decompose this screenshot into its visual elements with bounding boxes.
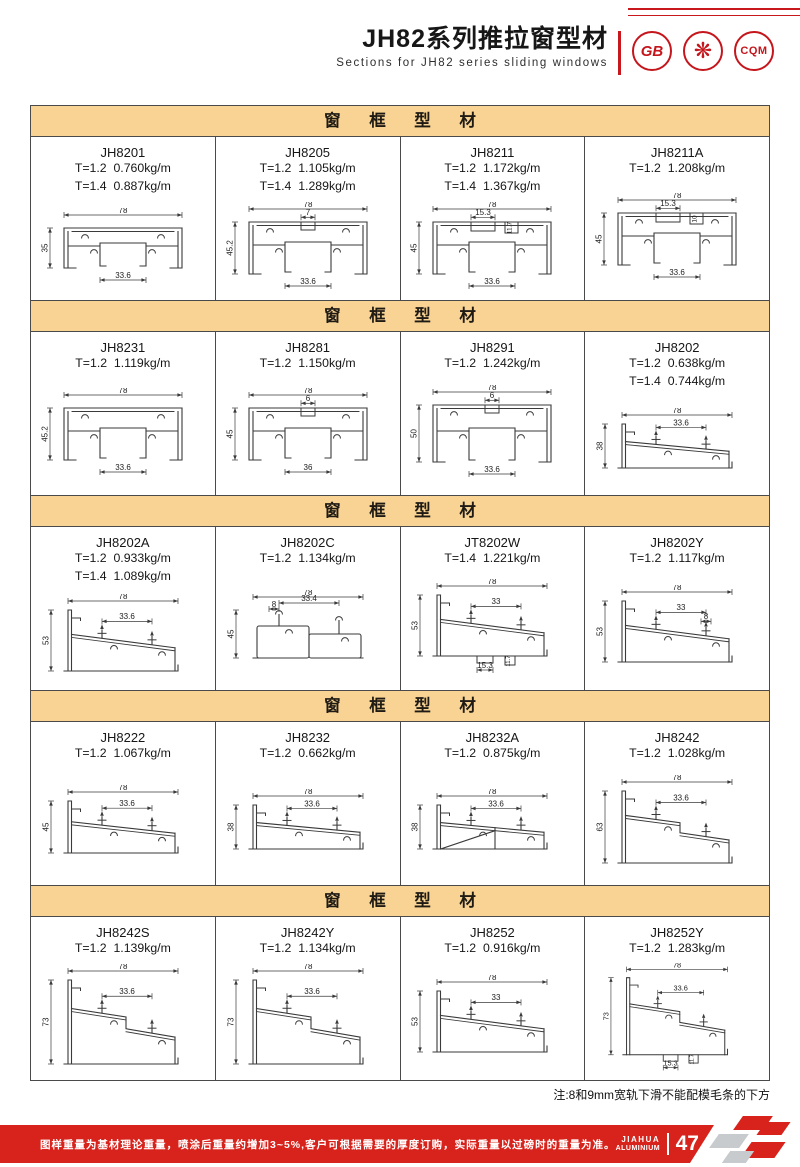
svg-text:50: 50 bbox=[410, 429, 419, 438]
svg-text:45.2: 45.2 bbox=[40, 426, 49, 442]
product-cell-JH8231: JH8231T=1.2 1.119kg/m7845.233.6 bbox=[31, 332, 215, 495]
drawing-area: 7833.67315.311.7 bbox=[585, 958, 769, 1080]
profile-drawing-JH8222: 7833.645 bbox=[38, 785, 208, 863]
product-spec: T=1.4 1.367kg/m bbox=[444, 178, 540, 196]
section-banner: 窗 框 型 材 bbox=[31, 300, 769, 332]
product-code: JH8211A bbox=[651, 145, 704, 160]
drawing-area: 7833853 bbox=[585, 568, 769, 690]
company-logo-icon bbox=[706, 1115, 794, 1167]
svg-text:78: 78 bbox=[488, 789, 497, 796]
product-cell-JH8281: JH8281T=1.2 1.150kg/m7864536 bbox=[215, 332, 400, 495]
drawing-area: 7833.638 bbox=[216, 763, 400, 885]
svg-text:78: 78 bbox=[118, 208, 127, 215]
svg-text:78: 78 bbox=[303, 789, 312, 796]
product-code: JH8232A bbox=[466, 730, 519, 745]
svg-text:78: 78 bbox=[673, 775, 682, 782]
svg-text:33.6: 33.6 bbox=[119, 799, 135, 808]
brand-line2: ALUMINIUM bbox=[616, 1145, 661, 1153]
product-cell-JH8211: JH8211T=1.2 1.172kg/mT=1.4 1.367kg/m7815… bbox=[400, 137, 585, 300]
product-spec: T=1.2 1.242kg/m bbox=[444, 355, 540, 373]
profile-drawing-JH8202C: 7833.4845 bbox=[223, 590, 393, 668]
profile-drawing-JH8231: 7845.233.6 bbox=[38, 388, 208, 480]
product-cell-JH8242: JH8242T=1.2 1.028kg/m7833.663 bbox=[584, 722, 769, 885]
product-cell-JH8252: JH8252T=1.2 0.916kg/m783353 bbox=[400, 917, 585, 1080]
product-cell-JH8252Y: JH8252YT=1.2 1.283kg/m7833.67315.311.7 bbox=[584, 917, 769, 1080]
svg-text:53: 53 bbox=[411, 621, 420, 630]
svg-text:45: 45 bbox=[410, 243, 419, 252]
drawing-area: 7833.638 bbox=[401, 763, 585, 885]
product-specs: T=1.2 0.875kg/m bbox=[444, 745, 540, 763]
svg-text:78: 78 bbox=[118, 785, 127, 792]
profile-table: 窗 框 型 材JH8201T=1.2 0.760kg/mT=1.4 0.887k… bbox=[30, 105, 770, 1081]
svg-text:33.6: 33.6 bbox=[485, 465, 501, 474]
product-spec: T=1.4 0.744kg/m bbox=[629, 373, 725, 391]
product-specs: T=1.2 1.134kg/m bbox=[260, 940, 356, 958]
svg-text:78: 78 bbox=[118, 388, 127, 395]
profile-drawing-JH8242Y: 7833.673 bbox=[223, 964, 393, 1074]
profile-drawing-JH8201: 783533.6 bbox=[38, 208, 208, 288]
svg-text:45.2: 45.2 bbox=[225, 239, 234, 255]
product-cell-JH8291: JH8291T=1.2 1.242kg/m7865033.6 bbox=[400, 332, 585, 495]
profile-drawing-JH8211A: 7815.3104533.6 bbox=[592, 193, 762, 285]
product-specs: T=1.2 1.028kg/m bbox=[629, 745, 725, 763]
product-cell-JH8202: JH8202T=1.2 0.638kg/mT=1.4 0.744kg/m7833… bbox=[584, 332, 769, 495]
product-spec: T=1.2 1.208kg/m bbox=[629, 160, 725, 178]
product-code: JH8232 bbox=[285, 730, 330, 745]
drawing-area: 7833.663 bbox=[585, 763, 769, 885]
svg-text:63: 63 bbox=[596, 822, 605, 831]
product-spec: T=1.2 1.150kg/m bbox=[260, 355, 356, 373]
svg-text:45: 45 bbox=[595, 234, 604, 243]
product-cell-JH8202Y: JH8202YT=1.2 1.117kg/m7833853 bbox=[584, 527, 769, 690]
product-row: JH8202AT=1.2 0.933kg/mT=1.4 1.089kg/m783… bbox=[31, 527, 769, 690]
product-specs: T=1.2 1.134kg/m bbox=[260, 550, 356, 568]
product-code: JH8202C bbox=[281, 535, 335, 550]
svg-text:33.6: 33.6 bbox=[119, 612, 135, 621]
svg-text:38: 38 bbox=[226, 822, 235, 831]
profile-drawing-JH8242S: 7833.673 bbox=[38, 964, 208, 1074]
svg-text:38: 38 bbox=[411, 822, 420, 831]
product-specs: T=1.2 1.283kg/m bbox=[629, 940, 725, 958]
svg-text:11.7: 11.7 bbox=[506, 655, 512, 667]
svg-text:45: 45 bbox=[41, 822, 50, 831]
product-spec: T=1.4 0.887kg/m bbox=[75, 178, 171, 196]
svg-text:33.6: 33.6 bbox=[485, 277, 501, 286]
svg-text:33.6: 33.6 bbox=[674, 984, 688, 993]
drawing-area: 7864536 bbox=[216, 373, 400, 495]
product-specs: T=1.2 1.208kg/m bbox=[629, 160, 725, 178]
svg-text:15.3: 15.3 bbox=[664, 1059, 678, 1068]
product-specs: T=1.2 0.933kg/mT=1.4 1.089kg/m bbox=[75, 550, 171, 586]
title-divider bbox=[618, 31, 621, 75]
product-spec: T=1.4 1.089kg/m bbox=[75, 568, 171, 586]
svg-text:15.3: 15.3 bbox=[660, 199, 676, 208]
svg-text:33.6: 33.6 bbox=[300, 277, 316, 286]
drawing-area: 7845.233.6 bbox=[31, 373, 215, 495]
product-spec: T=1.2 1.172kg/m bbox=[444, 160, 540, 178]
product-code: JH8211 bbox=[470, 145, 514, 160]
svg-text:8: 8 bbox=[271, 600, 276, 609]
svg-text:53: 53 bbox=[41, 636, 50, 645]
product-spec: T=1.4 1.289kg/m bbox=[260, 178, 356, 196]
product-cell-JH8242S: JH8242ST=1.2 1.139kg/m7833.673 bbox=[31, 917, 215, 1080]
product-spec: T=1.2 1.139kg/m bbox=[75, 940, 171, 958]
title-block: JH82系列推拉窗型材 Sections for JH82 series sli… bbox=[336, 26, 608, 69]
product-specs: T=1.2 0.638kg/mT=1.4 0.744kg/m bbox=[629, 355, 725, 391]
product-spec: T=1.2 0.916kg/m bbox=[444, 940, 540, 958]
product-code: JH8242S bbox=[96, 925, 149, 940]
svg-text:33.6: 33.6 bbox=[489, 799, 505, 808]
product-spec: T=1.2 1.028kg/m bbox=[629, 745, 725, 763]
product-specs: T=1.4 1.221kg/m bbox=[444, 550, 540, 568]
product-specs: T=1.2 1.150kg/m bbox=[260, 355, 356, 373]
product-spec: T=1.4 1.221kg/m bbox=[444, 550, 540, 568]
certification-logos: GB ❋ CQM bbox=[632, 31, 774, 71]
section-banner: 窗 框 型 材 bbox=[31, 495, 769, 527]
product-spec: T=1.2 0.933kg/m bbox=[75, 550, 171, 568]
drawing-area: 78335315.311.7 bbox=[401, 568, 585, 690]
product-specs: T=1.2 1.117kg/m bbox=[630, 550, 725, 568]
profile-drawing-JH8205: 78745.233.6 bbox=[223, 202, 393, 294]
svg-text:73: 73 bbox=[226, 1017, 235, 1026]
section-banner: 窗 框 型 材 bbox=[31, 106, 769, 137]
profile-drawing-JH8252: 783353 bbox=[407, 975, 577, 1062]
product-code: JT8202W bbox=[465, 535, 521, 550]
svg-text:78: 78 bbox=[118, 964, 127, 971]
svg-text:11.7: 11.7 bbox=[690, 1054, 696, 1064]
svg-text:33: 33 bbox=[677, 604, 686, 613]
svg-text:7: 7 bbox=[305, 208, 310, 217]
footer-disclaimer: 图样重量为基材理论重量，喷涂后重量约增加3~5%,客户可根据需要的厚度订购，实际… bbox=[40, 1137, 616, 1152]
svg-text:6: 6 bbox=[305, 394, 310, 403]
drawing-area: 7865033.6 bbox=[401, 373, 585, 495]
svg-text:10: 10 bbox=[692, 215, 699, 223]
svg-text:38: 38 bbox=[596, 441, 605, 450]
product-spec: T=1.2 1.119kg/m bbox=[75, 355, 170, 373]
svg-text:33.6: 33.6 bbox=[673, 793, 689, 802]
svg-text:45: 45 bbox=[225, 429, 234, 438]
brand-separator bbox=[667, 1133, 669, 1155]
product-spec: T=1.2 1.134kg/m bbox=[260, 550, 356, 568]
product-code: JH8231 bbox=[100, 340, 145, 355]
profile-drawing-JH8291: 7865033.6 bbox=[407, 385, 577, 482]
drawing-area: 7833.653 bbox=[31, 586, 215, 690]
cqm-certification-icon: CQM bbox=[734, 31, 774, 71]
product-row: JH8201T=1.2 0.760kg/mT=1.4 0.887kg/m7835… bbox=[31, 137, 769, 300]
svg-text:33.6: 33.6 bbox=[115, 271, 131, 280]
page-footer: 图样重量为基材理论重量，喷涂后重量约增加3~5%,客户可根据需要的厚度订购，实际… bbox=[0, 1115, 800, 1167]
product-cell-JH8242Y: JH8242YT=1.2 1.134kg/m7833.673 bbox=[215, 917, 400, 1080]
product-code: JH8202Y bbox=[650, 535, 703, 550]
svg-text:73: 73 bbox=[602, 1012, 611, 1020]
product-row: JH8242ST=1.2 1.139kg/m7833.673JH8242YT=1… bbox=[31, 917, 769, 1080]
product-spec: T=1.2 1.283kg/m bbox=[629, 940, 725, 958]
product-cell-JH8232A: JH8232AT=1.2 0.875kg/m7833.638 bbox=[400, 722, 585, 885]
product-spec: T=1.2 0.875kg/m bbox=[444, 745, 540, 763]
product-code: JH8202A bbox=[96, 535, 149, 550]
product-specs: T=1.2 1.172kg/mT=1.4 1.367kg/m bbox=[444, 160, 540, 196]
profile-drawing-JH8211: 7815.311.74533.6 bbox=[407, 202, 577, 294]
product-spec: T=1.2 1.067kg/m bbox=[75, 745, 171, 763]
product-code: JH8242Y bbox=[281, 925, 334, 940]
svg-text:33.6: 33.6 bbox=[115, 463, 131, 472]
svg-text:78: 78 bbox=[118, 594, 127, 601]
svg-text:78: 78 bbox=[488, 975, 497, 982]
product-cell-JH8202A: JH8202AT=1.2 0.933kg/mT=1.4 1.089kg/m783… bbox=[31, 527, 215, 690]
footer-brand: JIAHUA ALUMINIUM 47 bbox=[616, 1132, 699, 1156]
header-rule-lines bbox=[628, 8, 800, 16]
svg-text:35: 35 bbox=[40, 243, 49, 252]
drawing-area: 7833.638 bbox=[585, 391, 769, 495]
svg-text:53: 53 bbox=[596, 627, 605, 636]
product-specs: T=1.2 1.105kg/mT=1.4 1.289kg/m bbox=[260, 160, 356, 196]
section-banner: 窗 框 型 材 bbox=[31, 885, 769, 917]
drawing-area: 7833.645 bbox=[31, 763, 215, 885]
svg-text:78: 78 bbox=[303, 964, 312, 971]
product-row: JH8222T=1.2 1.067kg/m7833.645JH8232T=1.2… bbox=[31, 722, 769, 885]
gb-certification-icon: GB bbox=[632, 31, 672, 71]
product-code: JH8201 bbox=[100, 145, 145, 160]
svg-text:78: 78 bbox=[673, 408, 682, 415]
product-code: JH8252 bbox=[470, 925, 515, 940]
drawing-area: 7833.4845 bbox=[216, 568, 400, 690]
product-spec: T=1.2 1.105kg/m bbox=[260, 160, 356, 178]
svg-text:45: 45 bbox=[226, 629, 235, 638]
footer-bar: 图样重量为基材理论重量，喷涂后重量约增加3~5%,客户可根据需要的厚度订购，实际… bbox=[0, 1125, 714, 1163]
drawing-area: 7833.673 bbox=[216, 958, 400, 1080]
svg-text:8: 8 bbox=[704, 613, 709, 622]
svg-text:53: 53 bbox=[411, 1017, 420, 1026]
profile-drawing-JH8202: 7833.638 bbox=[592, 408, 762, 478]
section-banner: 窗 框 型 材 bbox=[31, 690, 769, 722]
svg-text:15.3: 15.3 bbox=[478, 661, 494, 670]
profile-drawing-JH8202Y: 7833853 bbox=[592, 585, 762, 672]
product-code: JH8242 bbox=[655, 730, 700, 745]
svg-text:33.6: 33.6 bbox=[304, 987, 320, 996]
drawing-area: 783533.6 bbox=[31, 196, 215, 300]
product-code: JH8202 bbox=[655, 340, 700, 355]
drawing-area: 7833.673 bbox=[31, 958, 215, 1080]
svg-text:78: 78 bbox=[673, 585, 682, 592]
brand-name: JIAHUA ALUMINIUM bbox=[616, 1135, 661, 1152]
product-cell-JH8211A: JH8211AT=1.2 1.208kg/m7815.3104533.6 bbox=[584, 137, 769, 300]
product-spec: T=1.2 1.117kg/m bbox=[630, 550, 725, 568]
svg-text:15.3: 15.3 bbox=[476, 208, 492, 217]
product-code: JH8205 bbox=[285, 145, 330, 160]
profile-drawing-JH8252Y: 7833.67315.311.7 bbox=[599, 963, 755, 1075]
catalog-page: JH82系列推拉窗型材 Sections for JH82 series sli… bbox=[0, 0, 800, 1167]
product-cell-JH8202C: JH8202CT=1.2 1.134kg/m7833.4845 bbox=[215, 527, 400, 690]
svg-text:11.7: 11.7 bbox=[507, 221, 514, 234]
profile-drawing-JH8232A: 7833.638 bbox=[407, 789, 577, 859]
page-title: JH82系列推拉窗型材 bbox=[336, 26, 608, 54]
product-cell-JH8201: JH8201T=1.2 0.760kg/mT=1.4 0.887kg/m7835… bbox=[31, 137, 215, 300]
svg-text:6: 6 bbox=[490, 392, 495, 401]
svg-text:33.6: 33.6 bbox=[119, 987, 135, 996]
svg-text:33.4: 33.4 bbox=[301, 594, 317, 603]
svg-text:78: 78 bbox=[488, 579, 497, 586]
product-spec: T=1.2 0.638kg/m bbox=[629, 355, 725, 373]
product-specs: T=1.2 0.662kg/m bbox=[260, 745, 356, 763]
product-row: JH8231T=1.2 1.119kg/m7845.233.6JH8281T=1… bbox=[31, 332, 769, 495]
product-spec: T=1.2 0.662kg/m bbox=[260, 745, 356, 763]
logo-shape bbox=[709, 1134, 749, 1148]
svg-text:33.6: 33.6 bbox=[669, 268, 685, 277]
drawing-area: 7815.3104533.6 bbox=[585, 178, 769, 300]
product-specs: T=1.2 1.242kg/m bbox=[444, 355, 540, 373]
product-specs: T=1.2 0.760kg/mT=1.4 0.887kg/m bbox=[75, 160, 171, 196]
logo-shape bbox=[722, 1151, 754, 1163]
product-code: JH8281 bbox=[285, 340, 330, 355]
svg-text:33: 33 bbox=[492, 598, 501, 607]
footnote: 注:8和9mm宽轨下滑不能配模毛条的下方 bbox=[30, 1086, 770, 1103]
product-cell-JH8222: JH8222T=1.2 1.067kg/m7833.645 bbox=[31, 722, 215, 885]
svg-text:78: 78 bbox=[673, 963, 681, 969]
profile-drawing-JH8232: 7833.638 bbox=[223, 789, 393, 859]
profile-drawing-JT8202W: 78335315.311.7 bbox=[407, 579, 577, 678]
page-subtitle: Sections for JH82 series sliding windows bbox=[336, 57, 608, 69]
profile-drawing-JH8202A: 7833.653 bbox=[38, 594, 208, 681]
product-spec: T=1.2 1.134kg/m bbox=[260, 940, 356, 958]
product-specs: T=1.2 1.067kg/m bbox=[75, 745, 171, 763]
product-cell-JH8232: JH8232T=1.2 0.662kg/m7833.638 bbox=[215, 722, 400, 885]
product-specs: T=1.2 1.119kg/m bbox=[75, 355, 170, 373]
profile-drawing-JH8242: 7833.663 bbox=[592, 775, 762, 873]
drawing-area: 783353 bbox=[401, 958, 585, 1080]
svg-text:33.6: 33.6 bbox=[673, 418, 689, 427]
product-cell-JH8205: JH8205T=1.2 1.105kg/mT=1.4 1.289kg/m7874… bbox=[215, 137, 400, 300]
product-spec: T=1.2 0.760kg/m bbox=[75, 160, 171, 178]
product-specs: T=1.2 0.916kg/m bbox=[444, 940, 540, 958]
svg-text:33.6: 33.6 bbox=[304, 799, 320, 808]
product-code: JH8222 bbox=[100, 730, 145, 745]
drawing-area: 78745.233.6 bbox=[216, 196, 400, 300]
profile-drawing-JH8281: 7864536 bbox=[223, 388, 393, 480]
product-specs: T=1.2 1.139kg/m bbox=[75, 940, 171, 958]
page-number: 47 bbox=[676, 1132, 699, 1156]
page-header: JH82系列推拉窗型材 Sections for JH82 series sli… bbox=[0, 0, 800, 97]
star-certification-icon: ❋ bbox=[683, 31, 723, 71]
product-code: JH8252Y bbox=[650, 925, 703, 940]
svg-text:33: 33 bbox=[492, 994, 501, 1003]
product-cell-JT8202W: JT8202WT=1.4 1.221kg/m78335315.311.7 bbox=[400, 527, 585, 690]
drawing-area: 7815.311.74533.6 bbox=[401, 196, 585, 300]
svg-text:36: 36 bbox=[303, 463, 312, 472]
svg-text:73: 73 bbox=[41, 1017, 50, 1026]
product-code: JH8291 bbox=[470, 340, 515, 355]
brand-line1: JIAHUA bbox=[616, 1135, 661, 1144]
